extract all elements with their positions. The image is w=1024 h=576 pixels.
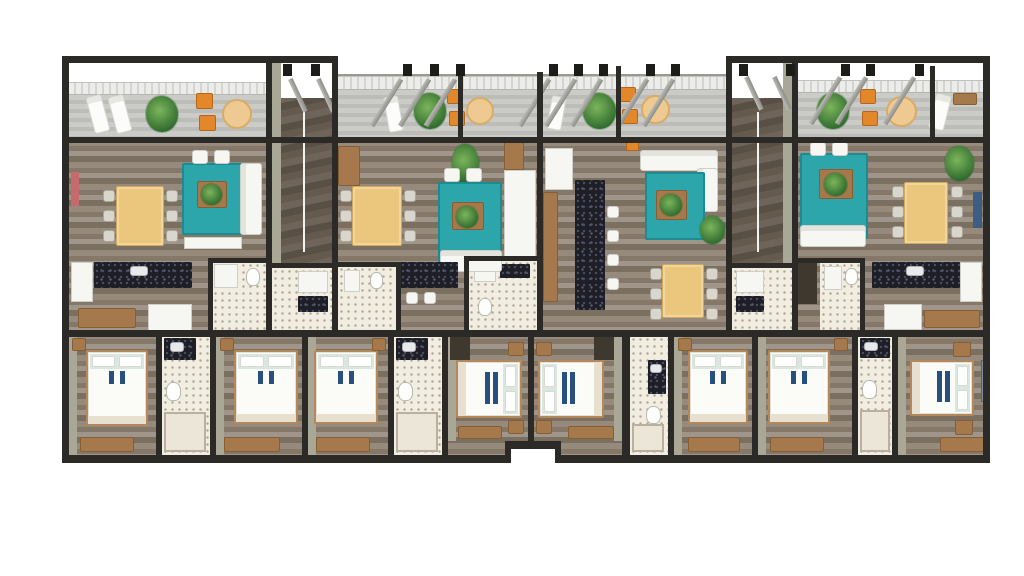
orange-chair	[862, 111, 878, 126]
plant	[456, 206, 478, 228]
dining-table	[352, 186, 402, 246]
wall	[792, 56, 798, 335]
armchair	[466, 168, 482, 182]
bed-foot	[459, 363, 466, 415]
bed-pillow	[544, 366, 555, 387]
dining-chair	[404, 210, 416, 222]
pergola-beam-cap	[403, 64, 412, 76]
wall-face	[69, 336, 77, 455]
armchair	[406, 292, 418, 304]
pergola-beam-cap	[311, 64, 320, 76]
pergola-beam-cap	[739, 64, 748, 76]
wall	[555, 441, 561, 463]
dresser	[688, 437, 740, 452]
balcony-parapet	[798, 80, 983, 93]
armchair	[607, 206, 619, 218]
bed-pillow	[544, 391, 555, 412]
wall	[528, 330, 534, 441]
bed-pillow	[119, 356, 142, 367]
dining-chair	[340, 210, 352, 222]
white-cabinet	[71, 262, 93, 302]
armchair	[607, 254, 619, 266]
white-cabinet	[545, 148, 573, 190]
sofa	[240, 163, 262, 235]
wall	[62, 56, 338, 63]
bed-foot	[691, 414, 745, 421]
bed-foot	[317, 414, 375, 421]
dresser	[568, 426, 614, 439]
bed-foot	[771, 414, 827, 421]
floor-plan	[0, 0, 1024, 576]
toilet	[398, 382, 413, 401]
pergola-beam-cap	[574, 64, 583, 76]
dresser	[940, 437, 984, 452]
pergola-beam-cap	[549, 64, 558, 76]
dining-chair	[404, 230, 416, 242]
wall	[668, 330, 674, 462]
dining-chair	[166, 230, 178, 242]
dining-chair	[706, 268, 718, 280]
wall	[726, 56, 990, 63]
stairwell	[272, 98, 332, 266]
bed	[234, 350, 298, 424]
plant	[700, 216, 725, 244]
white-cabinet	[504, 170, 536, 260]
pergola-beam-cap	[646, 64, 655, 76]
sideboard	[78, 308, 136, 328]
bed	[538, 360, 604, 418]
wall	[332, 56, 338, 335]
dining-chair	[892, 186, 904, 198]
toilet	[478, 298, 492, 316]
bed-stripe	[493, 372, 498, 404]
wall	[62, 137, 990, 143]
pergola-beam-cap	[915, 64, 924, 76]
armchair	[607, 278, 619, 290]
bed-pillow	[720, 356, 742, 367]
wall	[726, 263, 798, 268]
nightstand	[536, 342, 552, 356]
balcony-parapet	[338, 76, 537, 90]
wall	[266, 263, 338, 268]
pergola-beam-cap	[599, 64, 608, 76]
wall	[930, 66, 935, 140]
wall	[852, 330, 858, 462]
dresser	[458, 426, 502, 439]
armchair	[424, 292, 436, 304]
bed-stripe	[562, 372, 567, 404]
wardrobe	[504, 140, 524, 170]
wall	[537, 72, 543, 335]
wall	[726, 56, 732, 335]
wall	[156, 330, 162, 462]
dining-chair	[340, 190, 352, 202]
bed-pillow	[505, 366, 516, 387]
white-cabinet	[184, 237, 242, 249]
bed-foot	[237, 414, 295, 421]
nightstand	[220, 338, 234, 351]
bed-foot	[89, 416, 145, 423]
wall-face	[898, 336, 906, 455]
pergola-beam-cap	[786, 64, 795, 76]
toilet	[370, 272, 383, 289]
sink	[402, 342, 416, 352]
nightstand	[953, 342, 971, 357]
plant	[660, 194, 682, 216]
sideboard	[953, 93, 977, 105]
pergola-beam-cap	[456, 64, 465, 76]
wall	[208, 258, 213, 333]
white-cabinet	[884, 304, 922, 330]
wall-art	[71, 172, 79, 206]
bed	[314, 350, 378, 424]
closet	[450, 336, 470, 360]
wall	[458, 66, 463, 140]
bed-stripe	[258, 371, 263, 384]
wall	[505, 441, 561, 449]
pergola-beam-cap	[671, 64, 680, 76]
wall-face	[272, 63, 281, 266]
white-area	[505, 449, 561, 463]
toilet	[166, 382, 181, 401]
bed-pillow	[801, 356, 824, 367]
white-cabinet	[148, 304, 192, 332]
dining-chair	[650, 268, 662, 280]
dining-chair	[103, 210, 115, 222]
dining-chair	[650, 308, 662, 320]
wall	[442, 330, 448, 462]
sideboard	[924, 310, 980, 328]
bed-stripe	[802, 371, 807, 384]
wall	[860, 258, 865, 333]
bed-stripe	[721, 371, 726, 384]
round-table	[222, 99, 252, 129]
wall	[62, 56, 69, 463]
orange-chair	[196, 93, 213, 109]
dining-chair	[706, 288, 718, 300]
wall	[388, 330, 394, 462]
granite-counter	[736, 296, 764, 312]
toilet	[246, 268, 260, 286]
bed	[768, 350, 830, 424]
nightstand	[536, 420, 552, 434]
toilet	[646, 406, 661, 424]
plant	[824, 173, 847, 196]
shower	[164, 412, 206, 452]
wall	[622, 330, 630, 462]
sofa	[800, 225, 866, 247]
dining-chair	[951, 226, 963, 238]
dining-table	[116, 186, 164, 246]
white-cabinet	[214, 264, 238, 288]
bed-stripe	[269, 371, 274, 384]
white-cabinet	[824, 266, 842, 290]
wall	[983, 56, 990, 463]
armchair	[192, 150, 208, 164]
white-cabinet	[344, 270, 360, 292]
dining-chair	[340, 230, 352, 242]
sink	[906, 266, 924, 276]
nightstand	[508, 420, 524, 434]
bed-pillow	[957, 366, 968, 386]
wall	[892, 330, 898, 462]
wall	[334, 262, 401, 267]
wardrobe	[338, 146, 360, 186]
armchair	[607, 230, 619, 242]
bed	[456, 360, 522, 418]
sink	[650, 364, 662, 373]
dining-chair	[951, 206, 963, 218]
sink	[170, 342, 184, 352]
bed-pillow	[92, 356, 115, 367]
dresser	[80, 437, 134, 452]
wall-face	[216, 336, 224, 455]
wall-face	[614, 336, 622, 441]
bed-foot	[913, 363, 920, 413]
pergola-beam-cap	[430, 64, 439, 76]
plant	[146, 96, 178, 132]
dresser	[224, 437, 280, 452]
bed-stripe	[485, 372, 490, 404]
wall-art	[973, 192, 982, 228]
bed-stripe	[349, 371, 354, 384]
bed-foot	[594, 363, 601, 415]
granite-counter	[400, 262, 458, 288]
dresser	[770, 437, 824, 452]
wall	[62, 330, 990, 337]
wall-face	[674, 336, 682, 455]
stair-rail	[303, 112, 305, 252]
bed-stripe	[945, 371, 950, 402]
wall	[302, 330, 308, 462]
nightstand	[834, 338, 848, 351]
sink	[130, 266, 148, 276]
bed-stripe	[338, 371, 343, 384]
armchair	[444, 168, 460, 182]
orange-chair	[199, 115, 216, 131]
dining-chair	[892, 206, 904, 218]
roof-edge	[543, 74, 726, 76]
armchair	[832, 142, 848, 156]
pergola-beam-cap	[841, 64, 850, 76]
bed-pillow	[240, 356, 264, 367]
orange-chair	[860, 89, 876, 104]
plant	[945, 146, 974, 181]
granite-counter	[298, 296, 328, 312]
bed-stripe	[109, 371, 114, 384]
plant	[201, 184, 222, 205]
bed-stripe	[710, 371, 715, 384]
wall	[208, 258, 271, 263]
bed-stripe	[120, 371, 125, 384]
bed-pillow	[320, 356, 344, 367]
nightstand	[678, 338, 692, 351]
white-cabinet	[736, 271, 764, 293]
dining-chair	[404, 190, 416, 202]
dresser	[316, 437, 370, 452]
nightstand	[72, 338, 86, 351]
nightstand	[955, 420, 973, 435]
sink	[864, 342, 878, 351]
round-table	[466, 97, 494, 125]
nightstand	[372, 338, 386, 351]
dining-table	[662, 264, 704, 318]
dining-chair	[892, 226, 904, 238]
white-cabinet	[960, 262, 982, 302]
armchair	[810, 142, 826, 156]
armchair	[214, 150, 230, 164]
bed	[688, 350, 748, 424]
toilet	[862, 380, 877, 399]
dining-chair	[706, 308, 718, 320]
dining-chair	[951, 186, 963, 198]
bed-pillow	[774, 356, 797, 367]
granite-counter	[500, 264, 530, 278]
bed-pillow	[957, 390, 968, 410]
wall-face	[758, 336, 766, 455]
bed	[910, 360, 974, 416]
dining-table	[904, 182, 948, 244]
dining-chair	[103, 230, 115, 242]
bed-stripe	[570, 372, 575, 404]
wall	[62, 455, 505, 463]
wall	[505, 441, 511, 463]
dining-chair	[650, 288, 662, 300]
white-cabinet	[298, 271, 328, 293]
dining-chair	[166, 210, 178, 222]
pergola-beam-cap	[283, 64, 292, 76]
stair-rail	[757, 112, 759, 252]
wall	[795, 258, 865, 263]
bed-stripe	[937, 371, 942, 402]
wardrobe	[543, 192, 558, 302]
toilet	[845, 268, 858, 285]
dining-chair	[166, 190, 178, 202]
wall	[210, 330, 216, 462]
pergola-beam-cap	[866, 64, 875, 76]
bed-stripe	[791, 371, 796, 384]
shower	[632, 424, 664, 452]
wall	[266, 56, 272, 335]
bed-pillow	[505, 391, 516, 412]
wall	[464, 256, 469, 333]
shower	[860, 410, 890, 452]
wall	[616, 66, 621, 140]
closet	[594, 336, 614, 360]
wall	[752, 330, 758, 462]
nightstand	[508, 342, 524, 356]
bed-pillow	[694, 356, 716, 367]
bed	[86, 350, 148, 426]
shower	[396, 412, 438, 452]
wall	[396, 266, 401, 332]
closet	[797, 262, 817, 304]
bed-pillow	[268, 356, 292, 367]
wall	[464, 256, 542, 261]
bed-pillow	[348, 356, 372, 367]
dining-chair	[103, 190, 115, 202]
granite-counter	[575, 180, 605, 310]
